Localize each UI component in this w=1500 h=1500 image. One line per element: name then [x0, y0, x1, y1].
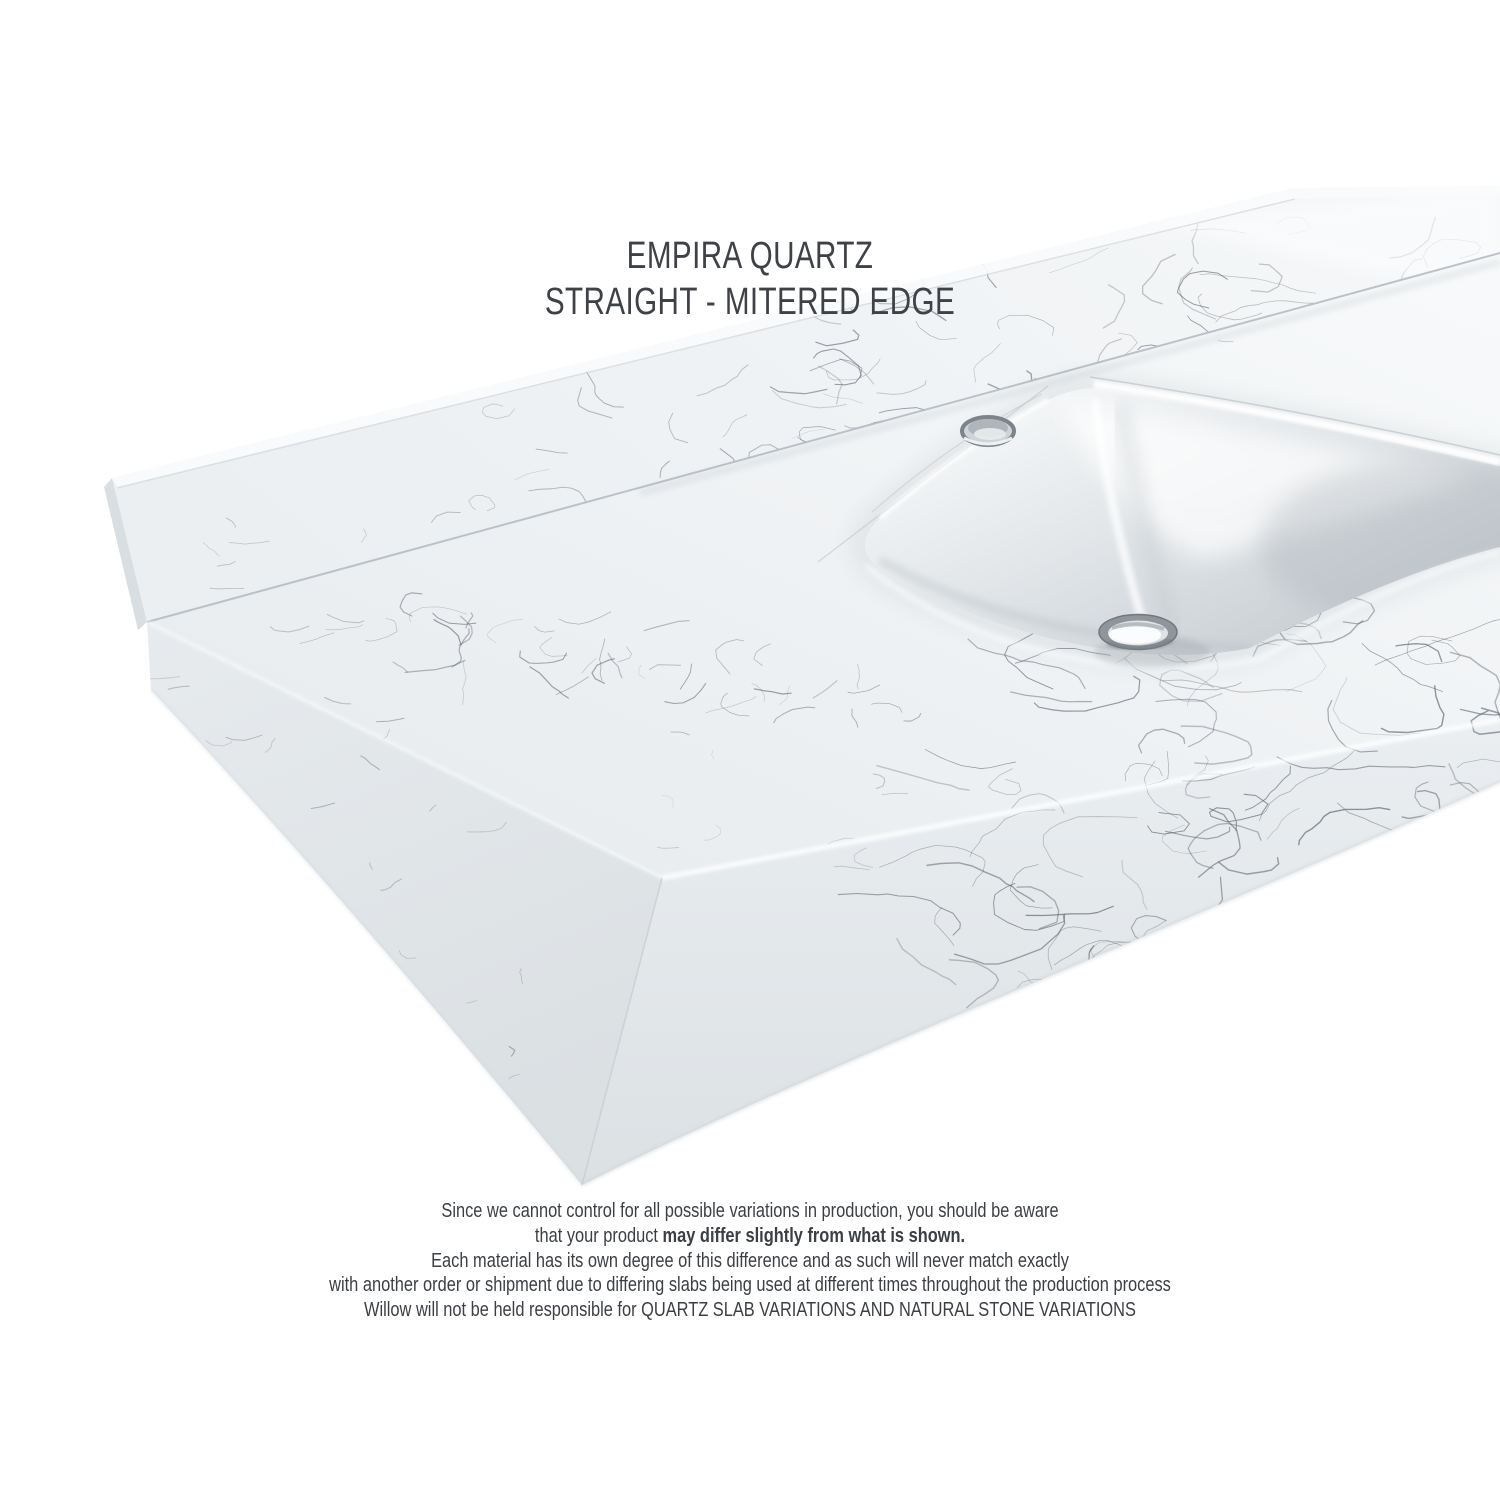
product-title-line1: EMPIRA QUARTZ: [165, 233, 1335, 279]
product-title-line2: STRAIGHT - MITERED EDGE: [165, 279, 1335, 325]
product-title: EMPIRA QUARTZ STRAIGHT - MITERED EDGE: [165, 233, 1335, 325]
variation-disclaimer: Since we cannot control for all possible…: [150, 1199, 1350, 1323]
product-page: EMPIRA QUARTZ STRAIGHT - MITERED EDGE Si…: [0, 0, 1500, 1500]
disclaimer-line3: Each material has its own degree of this…: [150, 1249, 1350, 1274]
faucet-hole: [962, 417, 1014, 445]
disclaimer-line1: Since we cannot control for all possible…: [150, 1199, 1350, 1224]
disclaimer-line5: Willow will not be held responsible for …: [150, 1298, 1350, 1323]
disclaimer-line4: with another order or shipment due to di…: [150, 1273, 1350, 1298]
disclaimer-line2: that your product may differ slightly fr…: [150, 1224, 1350, 1249]
